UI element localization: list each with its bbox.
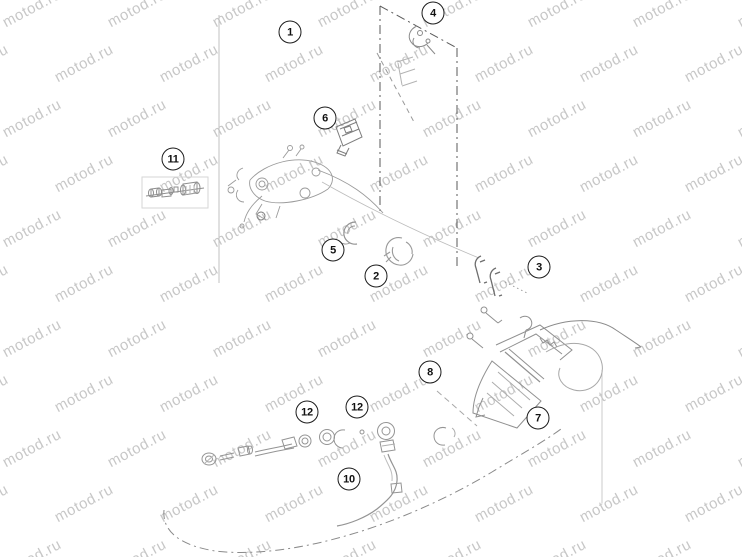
part-callout-8[interactable]: 8 bbox=[419, 361, 442, 384]
part-callout-6[interactable]: 6 bbox=[314, 107, 337, 130]
part-callout-5[interactable]: 5 bbox=[322, 239, 345, 262]
parts-diagram-page: motod.rumotod.rumotod.rumotod.rumotod.ru… bbox=[0, 0, 742, 557]
part-callout-11[interactable]: 11 bbox=[162, 148, 185, 171]
part-callout-12-9[interactable]: 12 bbox=[296, 401, 319, 424]
part-callout-1[interactable]: 1 bbox=[279, 21, 302, 44]
callout-layer: 1461152387121210 bbox=[0, 0, 742, 557]
part-callout-2[interactable]: 2 bbox=[365, 265, 388, 288]
part-callout-12-10[interactable]: 12 bbox=[346, 396, 369, 419]
part-callout-4[interactable]: 4 bbox=[422, 2, 445, 25]
part-callout-10[interactable]: 10 bbox=[338, 468, 361, 491]
part-callout-3[interactable]: 3 bbox=[528, 256, 551, 279]
part-callout-7[interactable]: 7 bbox=[527, 407, 550, 430]
